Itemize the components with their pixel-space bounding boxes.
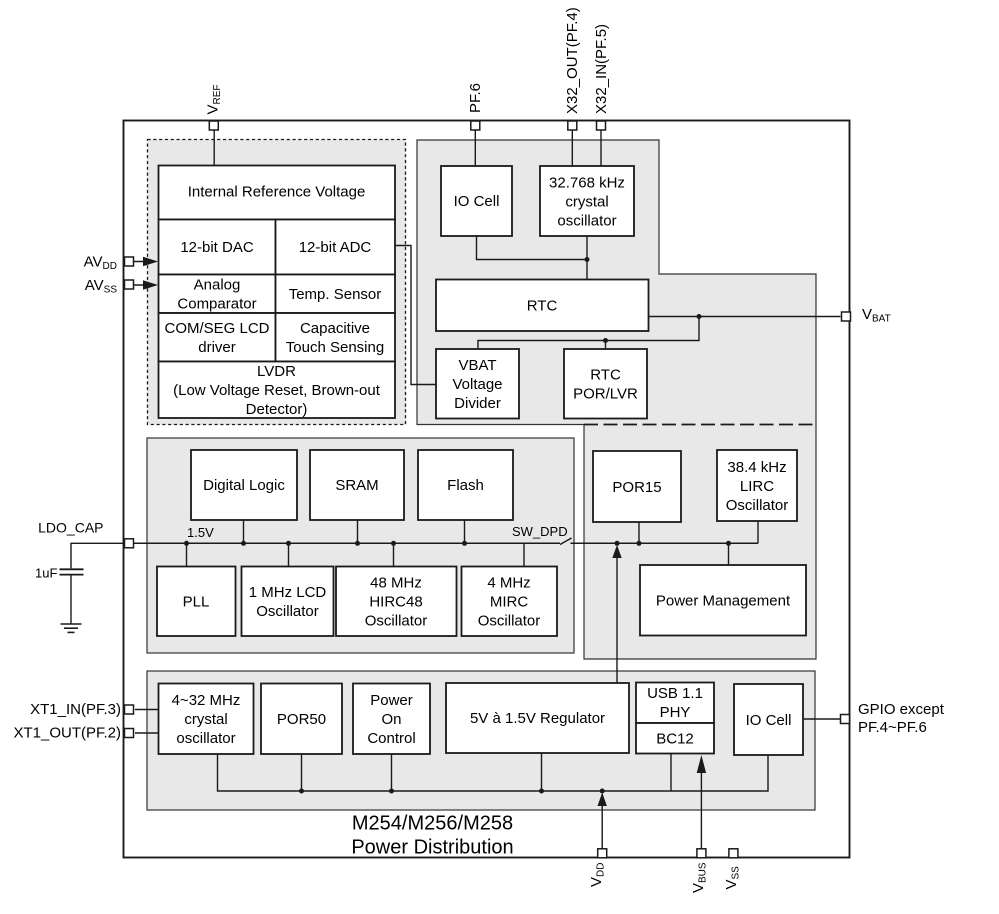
svg-text:LVDR: LVDR xyxy=(257,363,296,380)
svg-text:USB 1.1: USB 1.1 xyxy=(647,685,703,702)
svg-text:PHY: PHY xyxy=(660,704,691,721)
svg-text:Power: Power xyxy=(370,692,413,709)
svg-text:Analog: Analog xyxy=(194,277,241,294)
svg-text:Flash: Flash xyxy=(447,477,484,494)
svg-text:Digital Logic: Digital Logic xyxy=(203,477,285,494)
svg-text:Power Distribution: Power Distribution xyxy=(351,837,513,859)
svg-text:Capacitive: Capacitive xyxy=(300,320,370,337)
svg-text:POR/LVR: POR/LVR xyxy=(573,386,638,403)
svg-text:RTC: RTC xyxy=(527,298,558,315)
svg-text:4~32 MHz: 4~32 MHz xyxy=(172,692,241,709)
svg-text:(Low Voltage Reset, Brown-out: (Low Voltage Reset, Brown-out xyxy=(173,382,381,399)
svg-text:driver: driver xyxy=(198,339,236,356)
svg-text:BC12: BC12 xyxy=(656,731,694,748)
svg-text:12-bit DAC: 12-bit DAC xyxy=(180,239,254,256)
svg-text:Divider: Divider xyxy=(454,395,501,412)
svg-text:12-bit ADC: 12-bit ADC xyxy=(299,239,372,256)
svg-text:POR50: POR50 xyxy=(277,711,326,728)
svg-text:LIRC: LIRC xyxy=(740,478,774,495)
svg-text:oscillator: oscillator xyxy=(176,730,235,747)
svg-text:Touch Sensing: Touch Sensing xyxy=(286,339,384,356)
svg-text:SRAM: SRAM xyxy=(335,477,378,494)
svg-text:Internal Reference Voltage: Internal Reference Voltage xyxy=(188,184,366,201)
svg-text:RTC: RTC xyxy=(590,367,621,384)
svg-text:Oscillator: Oscillator xyxy=(365,613,428,630)
svg-text:1.5V: 1.5V xyxy=(187,525,214,540)
svg-text:Detector): Detector) xyxy=(246,401,308,418)
svg-text:1 MHz LCD: 1 MHz LCD xyxy=(249,584,327,601)
svg-text:crystal: crystal xyxy=(565,194,608,211)
svg-text:COM/SEG LCD: COM/SEG LCD xyxy=(164,320,269,337)
svg-text:32.768 kHz: 32.768 kHz xyxy=(549,175,625,192)
svg-text:38.4 kHz: 38.4 kHz xyxy=(727,459,786,476)
svg-text:Oscillator: Oscillator xyxy=(726,497,789,514)
svg-text:MIRC: MIRC xyxy=(490,594,528,611)
svg-text:LDO_CAP: LDO_CAP xyxy=(38,520,103,536)
svg-text:XT1_IN(PF.3): XT1_IN(PF.3) xyxy=(30,701,121,718)
svg-text:Control: Control xyxy=(367,730,415,747)
svg-text:4 MHz: 4 MHz xyxy=(487,575,530,592)
svg-text:IO Cell: IO Cell xyxy=(454,193,500,210)
svg-text:Comparator: Comparator xyxy=(177,296,256,313)
svg-text:5V à 1.5V Regulator: 5V à 1.5V Regulator xyxy=(470,710,605,727)
svg-text:X32_OUT(PF.4): X32_OUT(PF.4) xyxy=(564,7,581,114)
svg-text:M254/M256/M258: M254/M256/M258 xyxy=(352,813,513,835)
svg-text:1uF: 1uF xyxy=(35,566,57,581)
svg-text:SW_DPD: SW_DPD xyxy=(512,524,568,539)
svg-text:HIRC48: HIRC48 xyxy=(369,594,422,611)
svg-text:Temp. Sensor: Temp. Sensor xyxy=(289,286,382,303)
svg-text:PF.6: PF.6 xyxy=(467,83,484,113)
svg-text:PLL: PLL xyxy=(183,594,210,611)
svg-text:Voltage: Voltage xyxy=(452,376,502,393)
svg-text:Oscillator: Oscillator xyxy=(256,603,319,620)
svg-text:Oscillator: Oscillator xyxy=(478,613,541,630)
svg-text:X32_IN(PF.5): X32_IN(PF.5) xyxy=(593,24,610,114)
svg-text:Power Management: Power Management xyxy=(656,593,791,610)
svg-text:48 MHz: 48 MHz xyxy=(370,575,422,592)
svg-text:IO Cell: IO Cell xyxy=(746,712,792,729)
svg-text:oscillator: oscillator xyxy=(557,213,616,230)
svg-text:VBAT: VBAT xyxy=(458,357,496,374)
svg-text:On: On xyxy=(381,711,401,728)
svg-text:XT1_OUT(PF.2): XT1_OUT(PF.2) xyxy=(13,725,121,742)
svg-text:crystal: crystal xyxy=(184,711,227,728)
svg-text:PF.4~PF.6: PF.4~PF.6 xyxy=(858,719,927,736)
svg-text:POR15: POR15 xyxy=(612,479,661,496)
svg-text:GPIO except: GPIO except xyxy=(858,701,945,718)
